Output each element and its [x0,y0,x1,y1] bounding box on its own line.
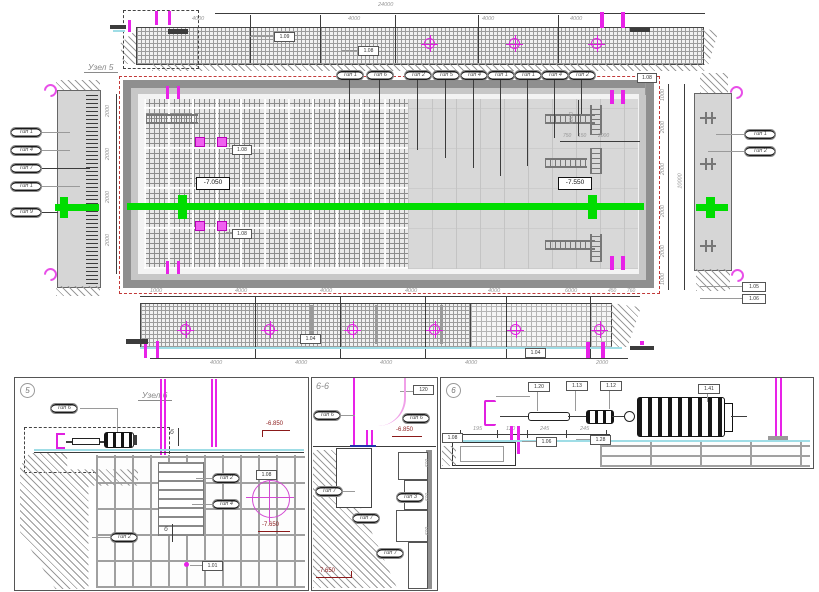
elevation-box: -7.050 [196,177,230,190]
waterline [140,347,622,349]
embed-marker-circle [594,324,605,335]
rebar-ladder [545,158,587,168]
leader-line [645,81,646,95]
position-label: 1.08 [442,433,463,443]
rebar-ladder [590,105,602,135]
embed-marker-circle [264,324,275,335]
elevation-box: -7.550 [558,177,592,190]
elevation-flag [316,577,352,578]
magenta-tick [155,11,158,25]
dim-label: 195 [473,426,482,432]
position-label: 1.20 [528,382,550,392]
type-callout: Тип 1 [487,70,515,81]
callout-leader [445,80,446,158]
dim-label: 450 [608,288,616,294]
magenta-tick [156,341,159,358]
detail-number-badge: 6 [446,383,461,398]
leader-line [496,396,530,397]
blue-embed-line [350,445,376,447]
dim-chain-line [684,84,685,290]
extension-line [395,15,396,63]
magenta-dot [184,562,189,567]
post-base [768,436,788,440]
magenta-square-marker [217,137,227,147]
right-wall-cap [700,73,728,93]
extension-line [558,15,559,63]
type-callout: Тип 1 [744,129,776,140]
left-wall-rebar-comb [86,92,98,284]
dim-label: 2000 [660,245,666,257]
dim-label: 4000 [488,288,500,294]
type-callout: Тип 4 [460,70,488,81]
magenta-tick [128,20,131,32]
dim-label: 760 [627,288,635,294]
left-wall-cap [56,80,100,90]
green-cross-marker [588,195,597,219]
type-callout: Тип 4 [541,70,569,81]
anchor-pocket-inner [460,446,504,462]
anchor-pocket [336,448,372,508]
right-wall-cap [696,269,730,291]
bottom-strip-right-end [611,303,641,347]
position-label: 1.09 [274,32,295,42]
embed-marker-circle [510,324,521,335]
elevation-flag [351,571,352,578]
rebar-ladder [146,114,198,124]
dim-label: 2000 [598,133,609,139]
position-label: 1.41 [698,384,720,394]
magenta-tick [600,12,604,28]
magenta-line [353,378,355,446]
leader-line [575,390,576,411]
embed-marker-circle [509,38,520,49]
section-cut-line [172,524,173,542]
extension-line [250,15,251,63]
elevation-mark: -6.850 [396,427,413,433]
type-callout: Тип 6 [50,403,78,414]
leader-line [250,36,274,37]
magenta-tick [601,342,605,358]
dim-label: 2000 [660,121,666,133]
nut [624,411,635,422]
leader-line [522,441,536,442]
rebar-cross-symbol [700,112,716,124]
position-label: 1.08 [256,470,277,480]
waterline [34,449,304,451]
magenta-tick [621,256,625,270]
dim-label: 600 [425,493,431,501]
magenta-tick [610,256,614,270]
dim-line [140,296,640,297]
left-wall-cap [56,286,100,296]
leader-line [42,212,58,213]
dim-label: 6000 [565,288,577,294]
floor-light-zone [408,99,638,269]
magenta-bracket [56,433,65,449]
callout-leader [581,80,582,114]
waterline-tick [113,30,125,32]
dim-label: 4000 [465,360,477,366]
elevation-mark: -6.850 [266,421,283,427]
elevation-flag [262,430,263,437]
leader-line [42,168,90,169]
elevation-flag [258,531,290,532]
leader-line [42,132,70,133]
type-callout: Тип 7 [10,163,42,174]
anchor-sleeve [72,438,100,445]
magenta-tick [177,86,180,99]
leader-line [700,298,742,299]
dim-label: 2000 [105,191,111,203]
leader-line [92,537,110,538]
embed-plate [168,29,188,34]
callout-leader [379,80,380,165]
embed-marker-circle [424,38,435,49]
dim-tick [566,430,567,438]
magenta-line [211,379,213,447]
magenta-square-marker [217,221,227,231]
leader-line [716,134,744,135]
callout-leader [527,80,528,166]
type-callout: Тип 6 [402,413,430,424]
extension-line [320,15,321,63]
detail-number-badge: 5 [20,383,35,398]
leader-line [609,390,610,409]
section-mark-label: 6 [170,429,174,436]
dim-label: 2000 [105,148,111,160]
position-label: 1.28 [590,435,611,445]
position-label: 1.08 [358,46,379,56]
leader-line [42,150,70,151]
dim-label: 750 [563,133,571,139]
type-callout: Тип 2 [744,146,776,157]
leader-line [342,50,358,51]
dim-label: 1000 [660,89,666,101]
magenta-tick [586,342,590,358]
rebar-ladder [545,240,595,250]
type-callout: Тип 6 [366,70,394,81]
leader-line [576,439,590,440]
rebar-ladder [590,234,602,262]
dim-line [578,100,579,136]
type-callout: Тип 7 [315,486,343,497]
position-label: 1.08 [637,73,657,83]
uzel6-label: Узел 6 [138,390,172,401]
magenta-square-marker [195,137,205,147]
elevation-mark: -7.650 [318,568,335,574]
position-label: 1.06 [742,294,766,304]
leader-line [537,391,538,411]
dim-label: 4000 [570,16,582,22]
top-dim-line [215,13,705,14]
extension-line [478,15,479,63]
tie-rod [612,416,624,417]
magenta-tick [621,12,625,28]
marker-crosshair [269,474,270,522]
position-label: 1.04 [300,334,321,344]
dim-label: 2000 [105,105,111,117]
type-callout: Тип 1 [10,181,42,192]
tie-rod [568,416,586,417]
magenta-tick [621,90,625,104]
rebar-cross-symbol [700,158,716,170]
dim-label: 600 [425,527,431,535]
embed-marker-circle [180,324,191,335]
callout-leader [349,80,350,160]
embed-plate [110,25,126,29]
rebar-ladder [590,148,602,174]
dim-label: 4000 [482,16,494,22]
position-label: 1.04 [525,348,546,358]
embed-marker-circle-large [252,480,290,518]
top-wall-strip-mesh [136,27,704,65]
type-callout: Тип 1 [336,70,364,81]
dim-chain-line [116,94,117,274]
type-callout: Тип 6 [313,410,341,421]
magenta-square-marker [195,221,205,231]
position-label: 1.08 [232,229,252,239]
type-callout: Тип 3 [396,492,424,503]
dim-tick [497,430,498,438]
type-callout: Тип 2 [404,70,432,81]
position-label: 1.06 [536,437,557,447]
cad-drawing-canvas: 24000 4000 4000 4000 4000 Узел 5 1.09 1.… [0,0,819,592]
corrugated-coupler [586,410,614,424]
section-cut-line [178,428,179,446]
dim-label: 6000 [569,112,575,124]
slab-top-line [34,452,304,453]
type-callout: Тип 7 [376,548,404,559]
type-callout: Тип 4 [10,145,42,156]
leader-line [80,408,118,409]
rebar-mesh-area [144,99,408,269]
turnbuckle-body [528,412,570,421]
dim-label: 150 [578,133,586,139]
step-block [396,510,428,542]
top-strip-right-end [702,27,718,65]
type-callout: Тип 4 [212,499,240,510]
magenta-tick [166,261,169,274]
magenta-dot [640,341,644,345]
anchor-plate [133,435,137,445]
leader-line [196,478,212,479]
magenta-line [775,378,777,436]
uzel5-detail-boundary [123,10,199,69]
formwork-joint [440,305,443,344]
magenta-tick [177,261,180,274]
magenta-tick [166,86,169,99]
position-label: 1.13 [566,381,588,391]
embed-plate [630,28,650,32]
dim-line [150,358,628,359]
type-callout: Тип 1 [514,70,542,81]
callout-leader [473,80,474,168]
dim-chain-line [668,84,669,290]
dim-label: 2000 [596,360,608,366]
rebar-cross-symbol [700,240,716,252]
marker-crosshair [246,497,294,498]
formwork-grid [600,442,810,467]
section-mark-label: 6 [164,526,168,533]
leader-line [707,393,708,402]
type-callout: Тип 9 [10,207,42,218]
type-callout: Тип 5 [432,70,460,81]
section-title: 6-6 [316,381,329,391]
magenta-bracket [484,400,496,426]
dim-label: 600 [425,459,431,467]
dim-label: 2000 [660,163,666,175]
magenta-tick [168,11,171,25]
dim-label: 4000 [348,16,360,22]
corrugated-anchor-assembly [637,397,725,437]
type-callout: Тип 1 [10,127,42,138]
elevation-mark: -7.650 [262,522,279,528]
magenta-line [780,378,782,436]
dim-label: 2000 [660,205,666,217]
type-callout: Тип 2 [568,70,596,81]
magenta-tick [610,90,614,104]
dim-label: 4000 [235,288,247,294]
callout-leader [554,80,555,138]
corrugated-anchor [104,432,134,448]
leader-line [190,565,202,566]
leader-line [708,151,744,152]
embed-marker-circle [591,38,602,49]
uzel5-label: Узел 5 [84,62,118,73]
elevation-flag [262,430,290,431]
step-block [398,452,428,480]
dim-label: 245 [540,426,549,432]
formwork-joint [375,305,378,344]
leader-line [192,504,212,505]
dim-label: 1000 [150,288,162,294]
dim-label: 4000 [320,288,332,294]
magenta-line [215,379,217,447]
position-label: 120 [413,385,434,395]
type-callout: Тип 7 [352,513,380,524]
position-label: 1.05 [742,282,766,292]
dim-tick [527,430,528,438]
callout-leader [417,80,418,150]
dim-label: 245 [580,426,589,432]
type-callout: Тип 2 [110,532,138,543]
dim-label-total: 10000 [678,173,684,188]
concrete-hatch [442,446,456,466]
dim-line [560,141,640,142]
tie-rod [731,416,747,417]
dim-label: 24000 [378,2,393,8]
leader-line [341,415,355,416]
position-label: 1.01 [202,561,223,571]
position-label: 1.08 [232,145,252,155]
green-cross-marker [60,197,68,218]
embed-plate [630,346,654,350]
dim-label: 4000 [405,288,417,294]
embed-plate [126,339,148,344]
tie-rod [500,416,528,417]
green-cross-marker [178,195,187,219]
dim-label: 4000 [295,360,307,366]
stair-steps [158,462,204,536]
embed-marker-circle [429,324,440,335]
dim-label: 4000 [210,360,222,366]
embed-marker-circle [347,324,358,335]
type-callout: Тип 2 [212,473,240,484]
position-label: 1.12 [600,381,622,391]
end-plate [724,403,733,432]
leader-line [343,491,355,492]
leader-line [42,186,80,187]
dim-line [460,434,610,435]
green-cross-marker [706,197,715,218]
elevation-flag [392,436,422,437]
callout-leader [500,80,501,176]
dim-label: 1000 [660,273,666,285]
green-centerline [127,203,644,210]
dim-label: 2000 [105,234,111,246]
step-block [408,542,428,589]
dim-label: 4000 [380,360,392,366]
